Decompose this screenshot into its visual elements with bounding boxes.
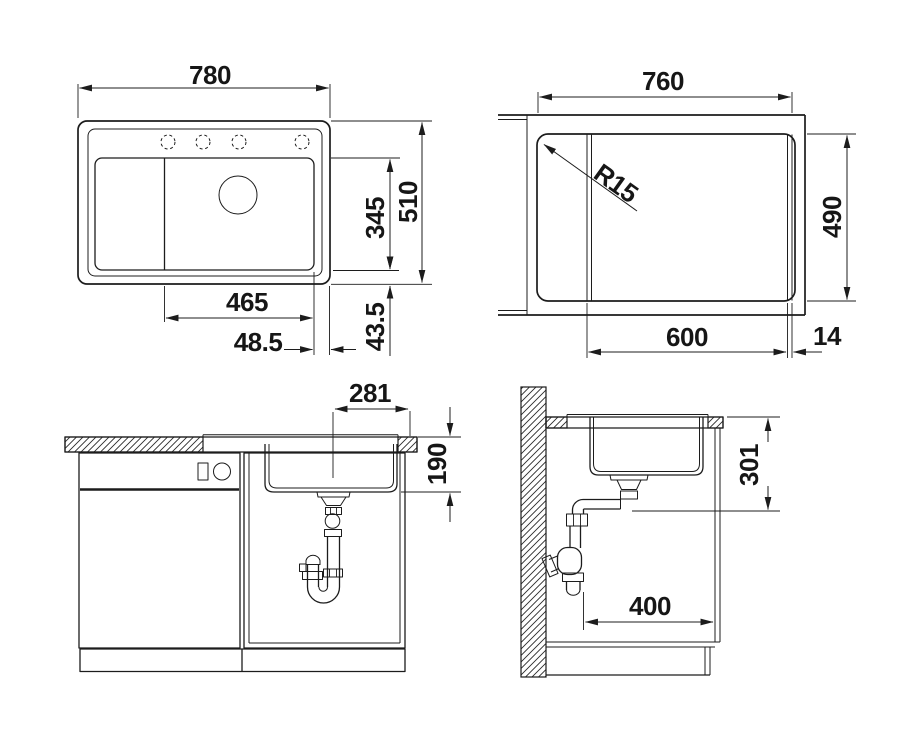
- dim-label-190: 190: [422, 443, 452, 485]
- dimension-cabinet-width: 600: [587, 303, 788, 358]
- trap-elbow-body: [558, 548, 582, 575]
- tap-hole-icon: [295, 135, 309, 149]
- strainer-cone: [321, 497, 346, 506]
- trap-cap: [306, 555, 321, 564]
- cleanout-plug: [300, 564, 307, 572]
- technical-drawing-canvas: 780 510 345 465: [0, 0, 919, 741]
- top-view: 780 510 345 465: [78, 60, 432, 357]
- bowl-outline: [95, 158, 314, 270]
- bowl-section-front: [265, 444, 397, 492]
- dishwasher-knob-icon: [214, 463, 231, 480]
- installation-drawing-page: 780 510 345 465: [0, 0, 919, 741]
- dim-label-600: 600: [666, 322, 708, 352]
- strainer-flange: [317, 492, 350, 497]
- dimension-rim-bottom: 43.5: [360, 247, 390, 356]
- worktop-hatch-right: [398, 437, 417, 452]
- dim-label-510: 510: [393, 181, 423, 223]
- dimension-cutout-depth: 490: [807, 134, 856, 301]
- tap-hole-icon: [161, 135, 175, 149]
- pipe-nut: [621, 491, 638, 499]
- tap-hole-icon: [232, 135, 246, 149]
- strainer-flange: [610, 475, 648, 480]
- dimension-cutout-width: 760: [538, 66, 792, 113]
- dim-label-400: 400: [629, 591, 671, 621]
- dimension-corner-radius: R15: [544, 145, 644, 212]
- ball-joint: [325, 514, 340, 529]
- dishwasher-control-icon: [198, 463, 208, 480]
- pipe-nut: [325, 530, 342, 537]
- drain-hole-icon: [219, 176, 257, 214]
- dim-label-14: 14: [813, 321, 842, 351]
- pipe-nut: [567, 514, 588, 526]
- sink-rim-inner-edge: [88, 129, 322, 276]
- dishwasher-cabinet: [79, 453, 240, 648]
- trap-bottom-cap: [567, 590, 581, 595]
- dim-label-48-5: 48.5: [234, 327, 283, 357]
- worktop-section-side: [546, 417, 723, 428]
- dimension-overall-width: 780: [78, 60, 330, 118]
- pipe-elbow: [573, 500, 584, 511]
- cutout-view: R15 760 490 600 14: [498, 66, 856, 358]
- dim-label-780: 780: [189, 60, 231, 90]
- trap-u-bend: [308, 587, 340, 603]
- cabinet-side: [546, 428, 720, 675]
- dimension-trap-depth: 400: [584, 591, 714, 630]
- dim-label-760: 760: [642, 66, 684, 96]
- drain-trap-side: [542, 475, 648, 595]
- dim-label-281: 281: [349, 378, 391, 408]
- dim-label-43-5: 43.5: [360, 303, 390, 352]
- side-view: 301 400: [521, 387, 780, 677]
- sink-outer-edge: [78, 121, 330, 284]
- front-view: 281 190: [65, 378, 461, 672]
- dimension-edge-offset: 14: [792, 303, 842, 358]
- dim-label-465: 465: [226, 287, 268, 317]
- drain-trap-front: [300, 492, 351, 603]
- sink-base-cabinet: [244, 453, 405, 648]
- dim-label-301: 301: [734, 444, 764, 486]
- dimension-clearance-below-top: 301: [632, 417, 780, 511]
- plinth: [80, 649, 405, 672]
- worktop-hatch-left: [65, 437, 203, 452]
- cutout-outline: [537, 134, 795, 301]
- wall-section: [521, 387, 546, 677]
- dim-label-r15: R15: [589, 157, 644, 208]
- strainer-cone: [617, 480, 641, 490]
- dim-label-345: 345: [360, 197, 390, 239]
- tap-hole-icons: [161, 135, 309, 149]
- dimension-drain-offset: 281: [333, 378, 410, 478]
- bowl-section-side: [590, 417, 703, 475]
- pipe-collar: [303, 572, 323, 580]
- tap-hole-icon: [196, 135, 210, 149]
- cabinet-side-reference-lines: [587, 135, 792, 301]
- dim-label-490: 490: [817, 196, 847, 238]
